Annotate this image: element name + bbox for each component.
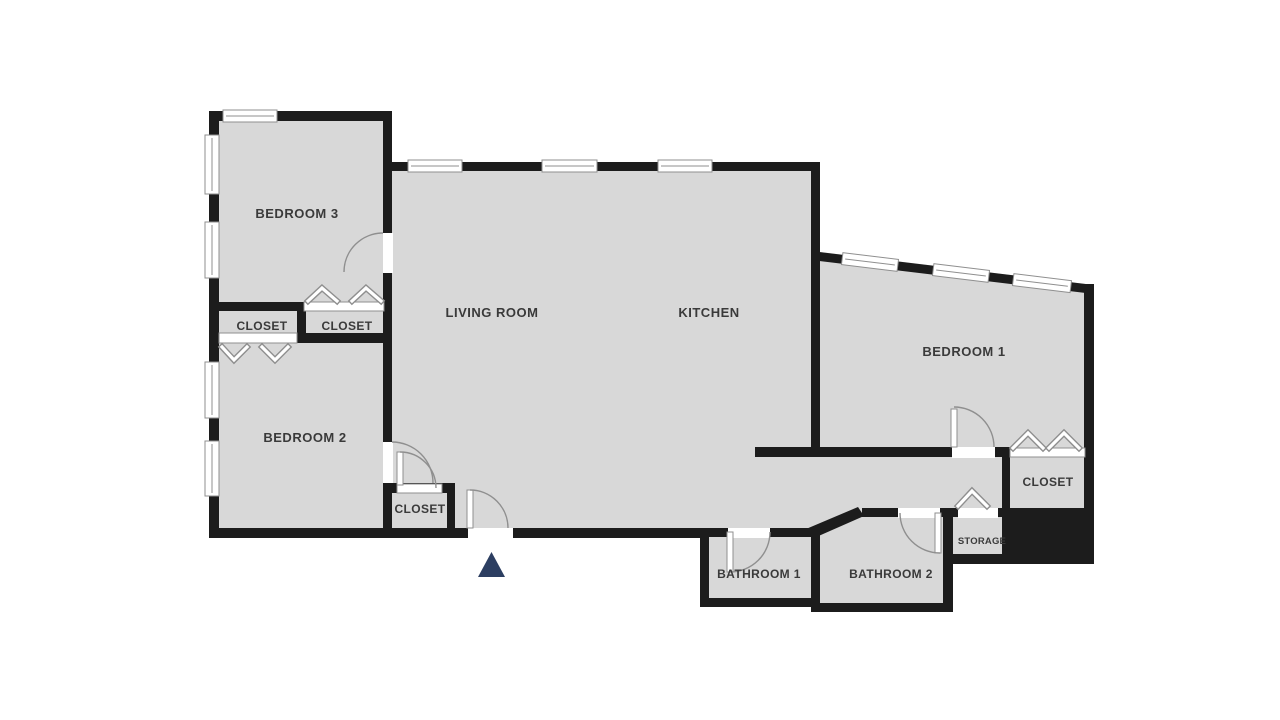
door-gap-bedroom2 (383, 442, 393, 483)
room-label-closet-bedroom1: CLOSET (1022, 475, 1073, 489)
window-icon (542, 160, 597, 172)
wall (447, 483, 455, 538)
door-gap-entry (468, 528, 513, 539)
wall (209, 528, 709, 538)
room-label-closet-hall: CLOSET (394, 502, 445, 516)
window-icon (408, 160, 462, 172)
door-leaf-bathroom2 (935, 513, 941, 553)
door-leaf-closet-hall (397, 452, 403, 485)
window-icon (205, 362, 219, 418)
wall (811, 603, 953, 612)
floor-plan-page: BEDROOM 3 CLOSET CLOSET BEDROOM 2 LIVING… (0, 0, 1280, 720)
door-leaf-entry (467, 490, 473, 528)
wall (811, 528, 820, 612)
room-label-storage: STORAGE (958, 536, 1006, 547)
door-gap-bathroom2 (898, 508, 940, 518)
bifold-opening-closet-bedroom3 (304, 302, 384, 311)
wall (811, 162, 820, 457)
room-label-bedroom2: BEDROOM 2 (263, 430, 346, 445)
window-icon (205, 135, 219, 194)
room-label-bedroom3: BEDROOM 3 (255, 206, 338, 221)
window-icon (205, 222, 219, 278)
room-label-bathroom1: BATHROOM 1 (717, 567, 801, 581)
door-gap-bedroom3 (383, 233, 393, 273)
bifold-opening-closet-bedroom2 (219, 333, 297, 343)
shaft (1002, 508, 1094, 564)
room-label-living-room: LIVING ROOM (446, 305, 539, 320)
room-label-bedroom1: BEDROOM 1 (922, 344, 1005, 359)
room-label-kitchen: KITCHEN (678, 305, 739, 320)
door-leaf-bathroom1 (727, 532, 733, 572)
room-label-bathroom2: BATHROOM 2 (849, 567, 933, 581)
room-label-closet-bedroom3: CLOSET (321, 319, 372, 333)
wall (1002, 447, 1010, 512)
wall (700, 528, 709, 607)
door-gap-bedroom1 (952, 447, 995, 458)
window-icon (223, 110, 277, 122)
window-icon (658, 160, 712, 172)
room-label-closet-bedroom2: CLOSET (236, 319, 287, 333)
floor-plan: BEDROOM 3 CLOSET CLOSET BEDROOM 2 LIVING… (0, 0, 1280, 720)
door-leaf-bedroom1 (951, 409, 957, 447)
door-gap-storage (958, 508, 998, 518)
wall (943, 554, 1008, 564)
wall (700, 598, 820, 607)
door-gap-bathroom1 (728, 528, 770, 538)
entrance-triangle-up-icon (478, 552, 505, 577)
window-icon (205, 441, 219, 496)
